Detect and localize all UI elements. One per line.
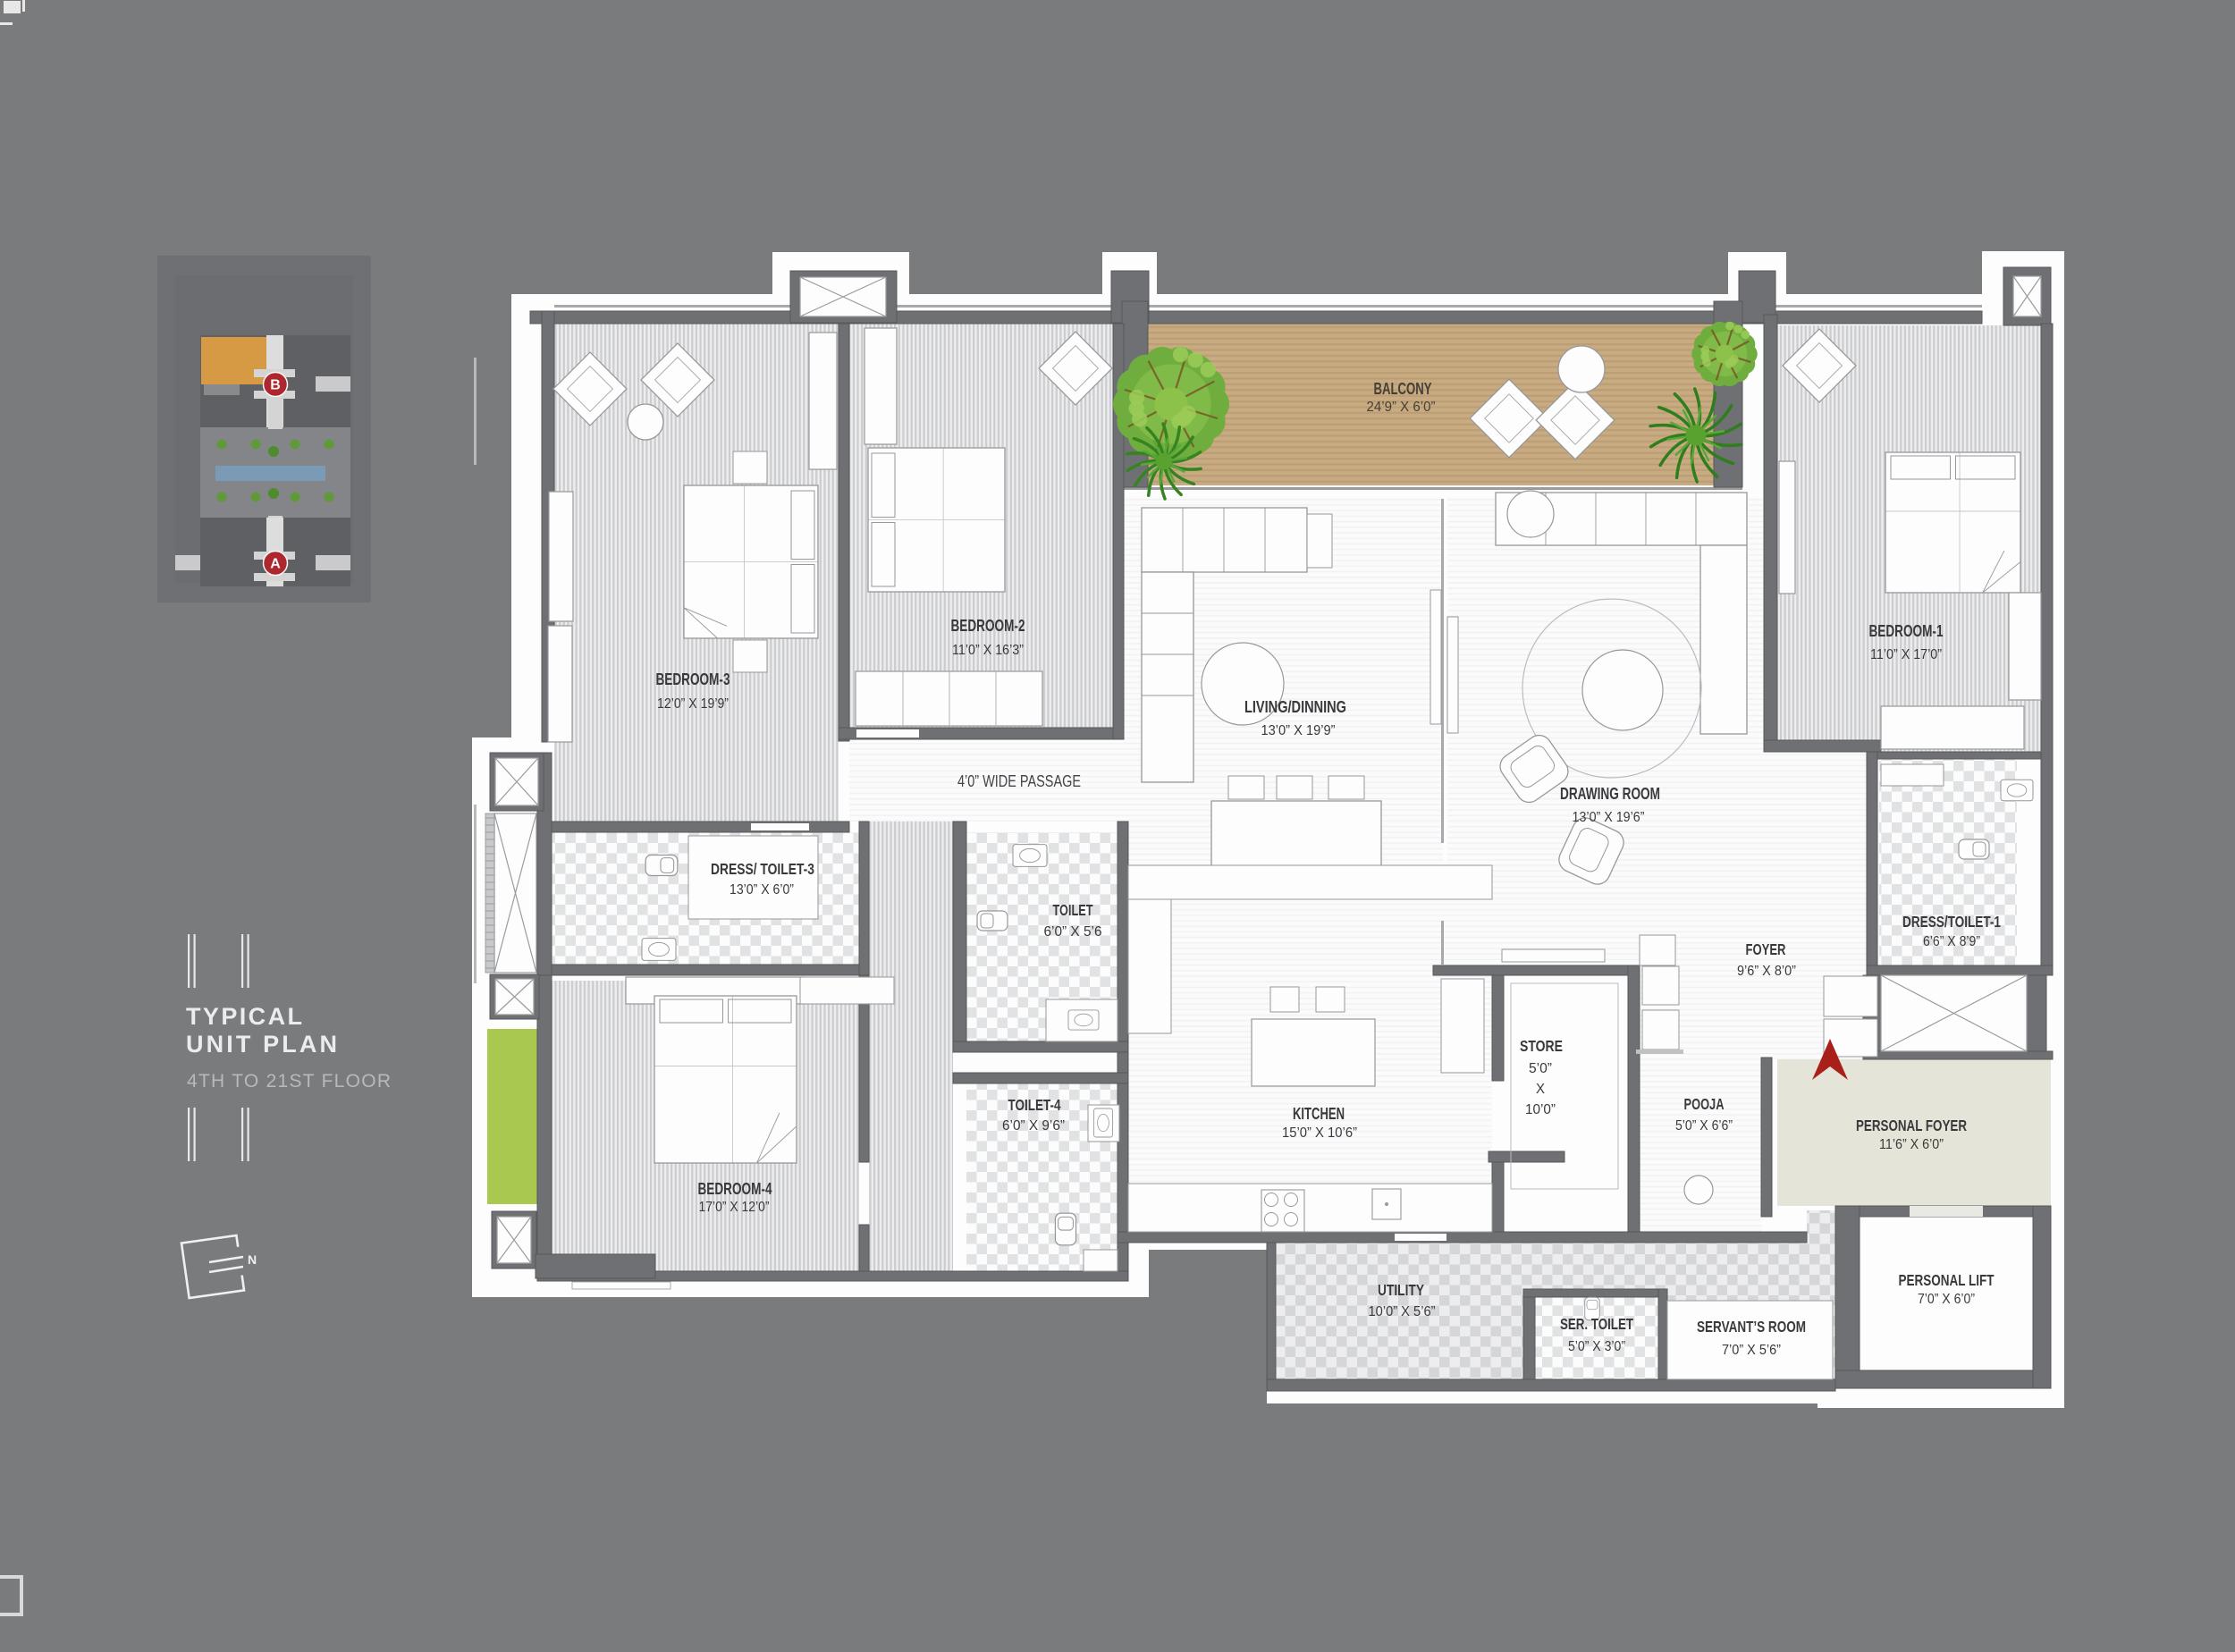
svg-text:UNIT PLAN: UNIT PLAN [186,1031,342,1058]
svg-text:9’6” X 8’0”: 9’6” X 8’0” [1737,964,1796,979]
svg-text:B: B [270,378,281,393]
svg-text:12’0” X 19’9”: 12’0” X 19’9” [657,696,729,712]
svg-text:6’0” X 9’6”: 6’0” X 9’6” [1002,1118,1065,1134]
svg-text:N: N [248,1252,257,1267]
svg-text:DRESS/TOILET-1: DRESS/TOILET-1 [1902,913,2001,931]
svg-text:4’0” WIDE PASSAGE: 4’0” WIDE PASSAGE [957,772,1081,790]
svg-text:KITCHEN: KITCHEN [1293,1104,1345,1123]
svg-text:SERVANT’S ROOM: SERVANT’S ROOM [1697,1318,1806,1336]
svg-text:UTILITY: UTILITY [1378,1281,1424,1299]
svg-text:17’0” X 12’0”: 17’0” X 12’0” [699,1200,770,1215]
svg-text:10’0”: 10’0” [1525,1102,1556,1117]
svg-text:SER. TOILET: SER. TOILET [1560,1315,1633,1333]
svg-text:LIVING/DINNING: LIVING/DINNING [1244,697,1346,716]
svg-text:BALCONY: BALCONY [1374,379,1432,398]
svg-text:BEDROOM-3: BEDROOM-3 [656,670,730,688]
svg-text:X: X [1536,1082,1546,1097]
svg-text:TOILET: TOILET [1053,901,1093,919]
svg-text:TOILET-4: TOILET-4 [1008,1096,1061,1114]
svg-text:DRESS/ TOILET-3: DRESS/ TOILET-3 [711,860,814,878]
svg-text:24’9” X 6’0”: 24’9” X 6’0” [1367,400,1436,415]
svg-text:DRAWING ROOM: DRAWING ROOM [1560,784,1660,803]
svg-text:5’0”: 5’0” [1529,1061,1552,1076]
svg-text:4TH TO 21ST FLOOR: 4TH TO 21ST FLOOR [187,1071,393,1091]
svg-text:PERSONAL FOYER: PERSONAL FOYER [1856,1117,1967,1134]
svg-text:A: A [270,557,281,572]
svg-text:5’0” X 6’6”: 5’0” X 6’6” [1675,1118,1733,1134]
svg-text:BEDROOM-1: BEDROOM-1 [1869,621,1944,640]
svg-text:BEDROOM-2: BEDROOM-2 [951,616,1025,635]
svg-text:13’0” X 19’9”: 13’0” X 19’9” [1261,723,1336,738]
svg-text:7’0” X 6’0”: 7’0” X 6’0” [1918,1292,1975,1307]
svg-text:STORE: STORE [1520,1037,1563,1055]
svg-text:13’0” X 19’6”: 13’0” X 19’6” [1573,810,1645,825]
svg-text:13’0” X 6’0”: 13’0” X 6’0” [730,882,794,898]
svg-text:FOYER: FOYER [1746,940,1786,958]
svg-text:PERSONAL LIFT: PERSONAL LIFT [1899,1271,1995,1289]
svg-text:BEDROOM-4: BEDROOM-4 [698,1179,773,1198]
svg-text:10’0” X 5’6”: 10’0” X 5’6” [1369,1304,1436,1319]
svg-text:11’0” X 17’0”: 11’0” X 17’0” [1870,647,1942,662]
svg-text:7’0” X 5’6”: 7’0” X 5’6” [1722,1343,1781,1358]
svg-text:TYPICAL: TYPICAL [186,1003,307,1030]
svg-text:11’6” X 6’0”: 11’6” X 6’0” [1879,1137,1944,1152]
svg-text:5’0” X 3’0”: 5’0” X 3’0” [1568,1339,1625,1354]
svg-text:6’6” X 8’9”: 6’6” X 8’9” [1923,934,1980,949]
svg-text:11’0” X 16’3”: 11’0” X 16’3” [952,643,1024,658]
svg-text:POOJA: POOJA [1684,1095,1725,1113]
svg-text:6’0” X 5’6: 6’0” X 5’6 [1044,924,1102,940]
svg-text:15’0” X 10’6”: 15’0” X 10’6” [1282,1125,1357,1141]
